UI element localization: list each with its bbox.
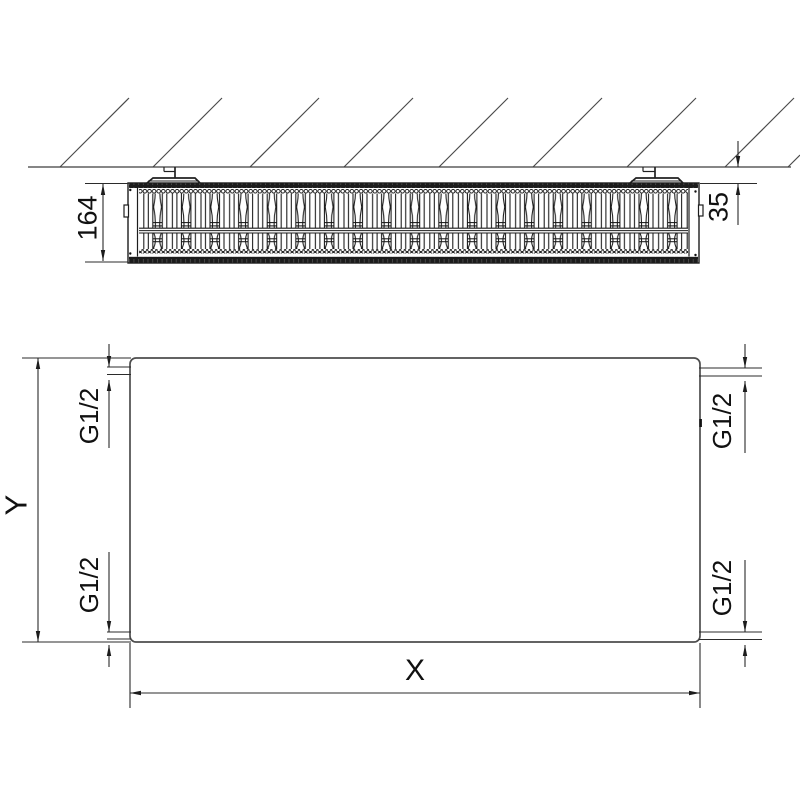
radiator-top-view [124,183,703,263]
radiator-back-panel [129,183,698,188]
convector-fins-upper [139,194,688,229]
mounting-bracket-right [630,167,683,183]
fin-bottom-loops [139,249,688,254]
edge-nub-right [699,419,702,427]
side-tab-right [699,205,704,216]
dim-wall-clearance-label: 35 [706,192,733,222]
wall-hatching [60,98,800,167]
connection-label-bottom-left: G1/2 [76,557,102,613]
dim-width-label: X [405,656,425,686]
connection-label-top-right: G1/2 [709,393,735,449]
fin-top-loops [139,189,688,194]
mounting-bracket-left [147,167,200,183]
connection-stub-top-left [107,344,131,448]
convector-fins-lower [139,234,688,250]
dim-depth-label: 164 [75,195,102,240]
connection-label-bottom-right: G1/2 [709,560,735,616]
connection-label-top-left: G1/2 [76,388,102,444]
radiator-front-view [130,358,702,642]
dim-height-label: Y [1,495,32,516]
drawing-linework [0,0,800,800]
radiator-front-panel [129,257,698,263]
side-tab-left [124,205,129,217]
radiator-dimension-drawing: 164 35 Y X G1/2 G1/2 G1/2 G1/2 [0,0,800,800]
connection-stub-bottom-left [107,552,131,667]
